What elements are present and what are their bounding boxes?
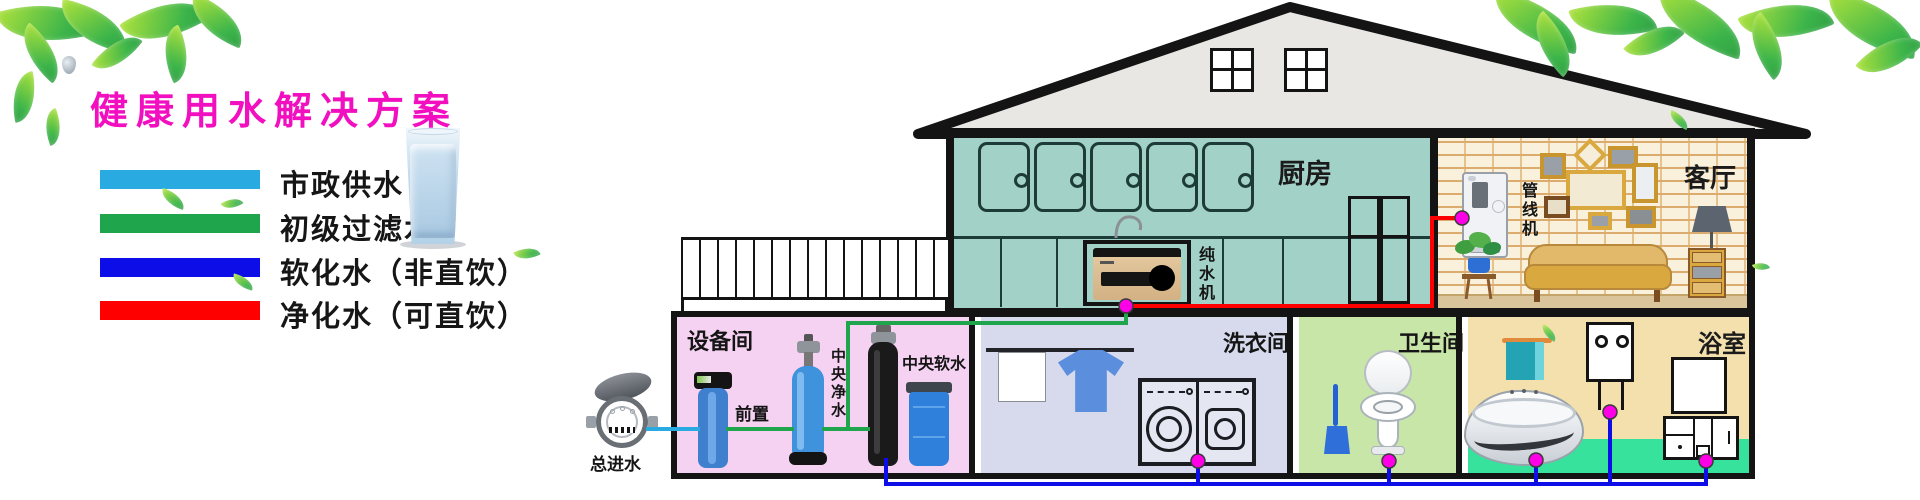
sofa-leg bbox=[1654, 290, 1660, 302]
hanging-sheet bbox=[998, 352, 1046, 402]
kitchen-cabinet-door bbox=[1090, 142, 1142, 212]
counter-seam bbox=[1056, 239, 1058, 307]
picture-frame bbox=[1588, 212, 1612, 230]
counter-seam bbox=[1222, 239, 1224, 307]
bathtub-jet bbox=[1534, 390, 1538, 394]
toilet-brush-cup bbox=[1324, 426, 1350, 454]
fridge-door-line bbox=[1377, 199, 1383, 301]
meter-port bbox=[586, 416, 596, 428]
heater-pipe-leg bbox=[1621, 382, 1624, 410]
washer-panel-dashes bbox=[1204, 391, 1242, 393]
towel bbox=[1506, 342, 1544, 380]
meter-port bbox=[648, 416, 658, 428]
washer-door bbox=[1205, 408, 1245, 450]
heater-pipe-leg bbox=[1598, 382, 1601, 410]
wall-top-band bbox=[946, 128, 1755, 138]
bathtub-jet bbox=[1510, 390, 1514, 394]
toilet-pedestal bbox=[1377, 418, 1399, 448]
prefilter-highlight bbox=[708, 392, 716, 464]
pipeline-dispenser-label: 管线机 bbox=[1515, 182, 1539, 250]
side-cabinet bbox=[1688, 248, 1726, 298]
washer-knob bbox=[1242, 388, 1249, 395]
fence bbox=[681, 237, 948, 299]
cabinet-handle bbox=[1728, 431, 1730, 444]
counter-seam bbox=[1000, 239, 1002, 307]
toilet-foot bbox=[1371, 446, 1405, 455]
attic-window bbox=[1210, 48, 1254, 92]
towel-fold bbox=[1535, 342, 1544, 380]
washing-machines bbox=[1138, 378, 1256, 466]
dispenser-vent bbox=[1468, 176, 1476, 181]
washer-door-inner bbox=[1156, 416, 1182, 442]
fridge bbox=[1348, 196, 1410, 304]
water-source-label: 总进水 bbox=[590, 450, 641, 475]
fence-base bbox=[681, 297, 948, 314]
water-meter bbox=[596, 396, 648, 448]
cabinet-knob bbox=[1126, 173, 1141, 188]
cabinet-knob bbox=[1070, 173, 1085, 188]
cabinet-line bbox=[1693, 419, 1695, 457]
cabinet-line bbox=[1666, 434, 1693, 436]
purifier-highlight bbox=[797, 372, 804, 450]
equipment-room-label: 设备间 bbox=[687, 324, 753, 356]
toilet-brush-handle bbox=[1333, 384, 1338, 426]
picture-frame bbox=[1566, 170, 1626, 210]
purifier-base bbox=[789, 452, 827, 465]
toilet-seat-opening bbox=[1373, 400, 1403, 414]
washer-door bbox=[1146, 406, 1192, 452]
softener-tank bbox=[868, 342, 898, 466]
legend-label-municipal: 市政供水 bbox=[280, 162, 404, 204]
banner-canvas: 健康用水解决方案 市政供水 初级过滤水 软化水（非直饮） 净化水（可直饮） 厨房… bbox=[0, 0, 1920, 500]
washer-divider bbox=[1196, 382, 1199, 462]
pure-water-machine-label: 纯水机 bbox=[1192, 246, 1216, 308]
basin-cabinet bbox=[1663, 416, 1739, 460]
cabinet-knob bbox=[1238, 173, 1253, 188]
cabinet-knob bbox=[1014, 173, 1029, 188]
legend-swatch-purified bbox=[100, 301, 260, 320]
machine-logo bbox=[1100, 261, 1114, 264]
bathroom-label: 浴室 bbox=[1698, 324, 1746, 359]
washer-panel-dashes bbox=[1147, 391, 1185, 393]
laundry-room-label: 洗衣间 bbox=[1223, 326, 1289, 358]
house-right-wall bbox=[1747, 132, 1755, 314]
glass-water bbox=[410, 144, 456, 238]
counter-seam bbox=[1282, 239, 1284, 307]
meter-dial bbox=[630, 409, 635, 414]
main-floor-line bbox=[946, 308, 1755, 317]
prefilter-head bbox=[694, 372, 732, 389]
salt-tank bbox=[909, 392, 949, 466]
kitchen-cabinet-door bbox=[1034, 142, 1086, 212]
bathtub-jet bbox=[1522, 389, 1526, 393]
meter-dial bbox=[620, 406, 625, 411]
living-room-label: 客厅 bbox=[1684, 158, 1736, 195]
lamp-pole bbox=[1710, 232, 1713, 248]
kitchen-room-label: 厨房 bbox=[1278, 152, 1332, 191]
page-title: 健康用水解决方案 bbox=[90, 80, 458, 135]
cabinet-drawer bbox=[1696, 445, 1710, 457]
pure-water-machine bbox=[1093, 248, 1181, 300]
prefilter-body bbox=[698, 388, 728, 468]
legend-label-softened: 软化水（非直饮） bbox=[280, 250, 528, 292]
cabinet-knob bbox=[1182, 173, 1197, 188]
machine-top-band bbox=[1093, 248, 1181, 257]
purifier-label: 中央净水 bbox=[827, 348, 848, 426]
cabinet-drawer bbox=[1692, 266, 1722, 279]
washer-door-inner bbox=[1214, 418, 1236, 440]
picture-frame bbox=[1632, 163, 1658, 203]
salt-tank-rib bbox=[913, 406, 945, 408]
cabinet-drawer bbox=[1692, 282, 1722, 294]
plant-leaf bbox=[1483, 242, 1501, 255]
purifier-tank bbox=[792, 366, 824, 458]
lamp-shade bbox=[1692, 206, 1732, 232]
kitchen-cabinet-door bbox=[978, 142, 1030, 212]
window-mullion bbox=[1213, 68, 1251, 71]
meter-dial bbox=[610, 409, 615, 414]
sofa-seat bbox=[1524, 264, 1672, 290]
picture-frame bbox=[1626, 206, 1656, 228]
picture-frame bbox=[1540, 153, 1566, 179]
cabinet-knob bbox=[1678, 445, 1682, 449]
bathroom-mirror bbox=[1671, 357, 1727, 414]
heater-knob bbox=[1616, 335, 1629, 348]
kitchen-cabinet-door bbox=[1202, 142, 1254, 212]
prefilter-label: 前置 bbox=[735, 400, 769, 425]
water-glass bbox=[404, 128, 462, 244]
legend-swatch-filtered bbox=[100, 214, 260, 233]
softener-label: 中央软水 bbox=[902, 350, 966, 374]
softener-highlight bbox=[874, 350, 880, 454]
prefilter-sticker bbox=[697, 376, 711, 383]
dispenser-screen bbox=[1472, 182, 1488, 208]
plant-pot bbox=[1468, 258, 1490, 273]
picture-frame bbox=[1544, 196, 1570, 218]
glass-rim bbox=[408, 128, 458, 135]
salt-tank-rib bbox=[913, 436, 945, 438]
bathtub bbox=[1464, 390, 1584, 466]
legend-swatch-municipal bbox=[100, 170, 260, 189]
machine-dial bbox=[1149, 265, 1175, 291]
washer-knob bbox=[1186, 388, 1193, 395]
cabinet-drawer bbox=[1692, 252, 1722, 263]
toilet-bowl bbox=[1360, 392, 1416, 422]
window-mullion bbox=[1287, 68, 1325, 71]
dispenser-fan bbox=[1492, 200, 1505, 213]
water-heater bbox=[1586, 322, 1634, 382]
sofa-leg bbox=[1534, 290, 1540, 302]
heater-knob bbox=[1595, 335, 1608, 348]
attic-window bbox=[1284, 48, 1328, 92]
toilet-room-label: 卫生间 bbox=[1398, 326, 1464, 358]
kitchen-cabinet-door bbox=[1146, 142, 1198, 212]
kitchen-living-wall bbox=[1430, 138, 1438, 310]
cabinet-line bbox=[1711, 419, 1713, 457]
meter-register bbox=[609, 427, 635, 433]
legend-label-purified: 净化水（可直饮） bbox=[280, 293, 528, 335]
